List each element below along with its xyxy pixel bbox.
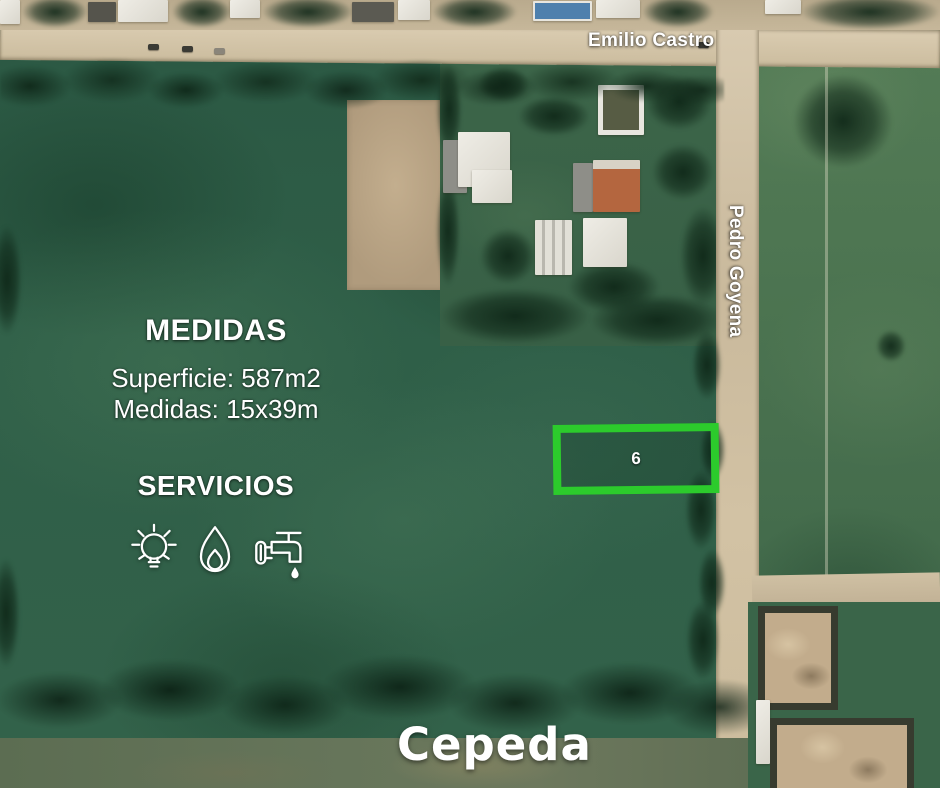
water-icon (250, 521, 304, 579)
medidas-line: Medidas: 15x39m (103, 394, 329, 425)
treeline-top (0, 54, 724, 126)
servicios-heading: SERVICIOS (103, 470, 329, 502)
lot-outline: 6 (553, 423, 720, 495)
dirt-lot (347, 100, 444, 290)
building (472, 170, 512, 203)
gas-icon (194, 522, 236, 578)
tree (692, 330, 722, 400)
lot-number: 6 (631, 449, 641, 469)
shed (583, 218, 627, 267)
building (118, 0, 168, 22)
building (758, 606, 838, 710)
tree (262, 0, 354, 28)
tree (652, 144, 714, 200)
building (573, 163, 593, 212)
tree-cluster (793, 74, 893, 168)
building (770, 718, 914, 788)
vehicle (148, 44, 159, 50)
street-label-emilio-castro: Emilio Castro (588, 30, 714, 52)
superficie-line: Superficie: 587m2 (103, 363, 329, 394)
building (88, 2, 116, 22)
electricity-icon (128, 520, 180, 580)
bush (876, 330, 906, 362)
vehicle (182, 46, 193, 52)
field-path (825, 60, 828, 575)
services-icons (103, 520, 329, 580)
building (0, 0, 20, 24)
building (352, 2, 394, 22)
building (756, 700, 770, 764)
swimming-pool (533, 1, 592, 21)
tree (22, 0, 88, 28)
street-label-pedro-goyena: Pedro Goyena (724, 205, 746, 355)
shed (535, 220, 572, 275)
building (230, 0, 260, 18)
building (398, 0, 430, 20)
servicios-block: SERVICIOS (103, 470, 329, 580)
building (596, 0, 640, 18)
tree (642, 0, 714, 28)
top-houses-strip (0, 0, 940, 30)
tree (480, 228, 536, 284)
city-label: Cepeda (397, 718, 592, 771)
red-roof-house (593, 160, 640, 212)
tree (172, 0, 232, 28)
aerial-lot-advert: 6 Emilio Castro Pedro Goyena MEDIDAS Sup… (0, 0, 940, 788)
tree (800, 0, 940, 30)
dirt-road (752, 572, 940, 605)
tree (432, 0, 517, 28)
tree-row (440, 288, 590, 344)
medidas-heading: MEDIDAS (103, 314, 329, 348)
building (765, 0, 801, 14)
medidas-block: MEDIDAS Superficie: 587m2 Medidas: 15x39… (103, 314, 329, 425)
treeline-bottom (0, 645, 770, 753)
